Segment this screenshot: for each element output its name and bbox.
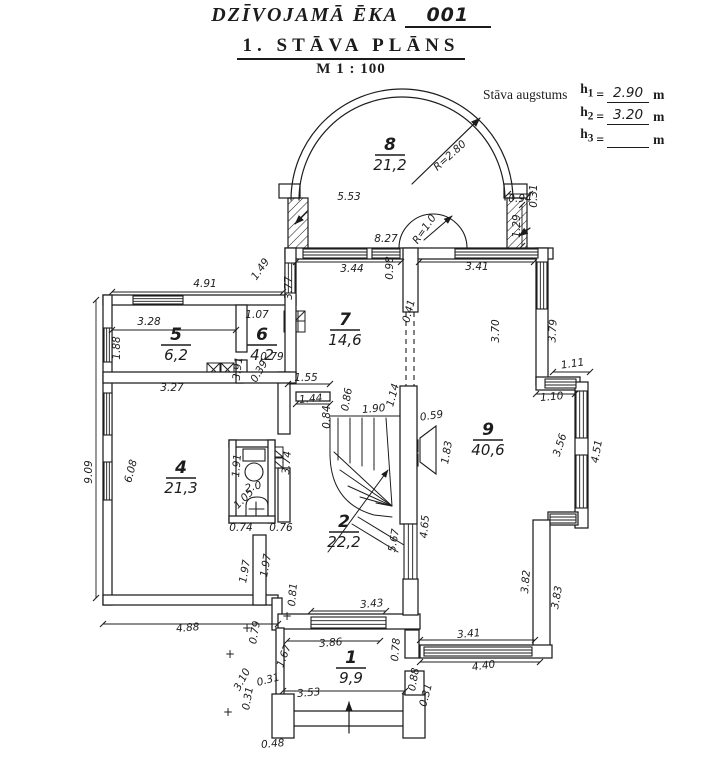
stair-winder	[386, 418, 392, 506]
room-area: 6,2	[164, 346, 188, 364]
floor-plan-sheet: DZĪVOJAMĀ ĒKA 001 1. STĀVA PLĀNS M 1 : 1…	[0, 0, 702, 774]
window-frame	[311, 617, 386, 628]
dimension-label: 3.44	[340, 263, 363, 275]
survey-mark: +	[282, 609, 292, 623]
window-symbol	[311, 617, 386, 628]
dimension-label: 3.41	[457, 627, 481, 641]
window-symbol	[550, 514, 576, 523]
dimension-label: 3.86	[319, 636, 344, 650]
window-symbol	[545, 379, 576, 388]
wall	[405, 630, 419, 658]
dimension-label: 0.81	[286, 583, 300, 607]
dimension-label: 3.77	[283, 276, 295, 300]
window-symbol	[537, 262, 547, 309]
dimension-label: 0.48	[261, 737, 286, 751]
room-label: 222,2	[327, 512, 360, 551]
dimension-label: 1.11	[560, 356, 585, 371]
wall	[103, 295, 296, 305]
window-symbol	[576, 391, 587, 438]
dimension-label: 0.76	[269, 522, 293, 534]
wall	[272, 694, 294, 738]
dimension-label: 9.09	[83, 460, 95, 484]
dimension-label: 1.97	[237, 559, 253, 584]
wall	[533, 520, 550, 650]
wall	[268, 440, 275, 523]
dimension-label: 1.90	[362, 402, 387, 416]
dimension-label: 1.88	[111, 336, 123, 360]
dimension-label: 1.29	[511, 214, 523, 238]
room-number: 2	[338, 512, 350, 532]
window-symbol	[104, 462, 112, 500]
dimension-label: 0.74	[229, 522, 252, 534]
survey-mark: +	[242, 621, 252, 635]
room-number: 9	[482, 420, 494, 440]
dimension-label: 5.53	[337, 191, 360, 203]
wall	[278, 468, 290, 522]
dimension-label: 4.88	[176, 621, 201, 635]
window-frame	[404, 524, 417, 579]
fireplace-opening	[420, 426, 436, 474]
window-symbol	[576, 455, 587, 508]
dimension-label: 3.43	[360, 597, 384, 611]
dimension-label: 8.27	[374, 233, 398, 245]
dimension-label: 1.14	[384, 382, 402, 408]
room-number: 7	[339, 310, 351, 330]
window-frame	[537, 262, 547, 309]
survey-mark: +	[223, 705, 233, 719]
room-label: 714,6	[328, 310, 361, 349]
dimension-label: 5.67	[386, 528, 402, 553]
window-frame	[576, 391, 587, 438]
dimension-label: 0.98	[384, 256, 396, 280]
room-area: 22,2	[327, 533, 360, 551]
room-label: 940,6	[471, 420, 504, 459]
dimension-label: 1.10	[540, 390, 565, 404]
arch-column	[288, 198, 308, 250]
dimension-label: 1.83	[439, 440, 455, 465]
window-symbol	[424, 647, 532, 656]
column-footing	[279, 184, 300, 198]
window-frame	[104, 393, 112, 435]
room-label: 421,3	[164, 458, 197, 497]
wall	[236, 372, 296, 383]
dimension-label: 3.56	[551, 432, 570, 458]
dimension-label: 1.44	[299, 392, 323, 406]
window-frame	[455, 249, 538, 258]
window-symbol	[133, 296, 183, 304]
dimension-label: R=2.80	[431, 138, 469, 174]
window-frame	[424, 647, 532, 656]
room-area: 40,6	[471, 441, 504, 459]
wall	[229, 440, 236, 523]
room-area: 21,2	[373, 156, 406, 174]
dimension-label: 3.74	[280, 451, 294, 475]
window-frame	[133, 296, 183, 304]
room-number: 8	[384, 135, 396, 155]
floor-plan-drawing: 821,2714,656,264,2421,3940,6222,219,95.5…	[0, 0, 702, 774]
dimension-label: 6.08	[122, 458, 140, 484]
room-label: 56,2	[161, 325, 191, 364]
window-frame	[104, 462, 112, 500]
window-frame	[545, 379, 576, 388]
dimension-label: 4.51	[589, 439, 605, 464]
wall	[403, 579, 418, 615]
room-number: 5	[170, 325, 182, 345]
window-frame	[303, 249, 367, 258]
wall	[103, 595, 278, 605]
room-number: 6	[256, 325, 268, 345]
arch-outer	[291, 89, 513, 200]
dimension-label: 3.41	[465, 261, 488, 273]
room-area: 21,3	[164, 479, 197, 497]
dimension-label: 1.07	[245, 309, 269, 321]
dimension-label: 0.78	[389, 637, 403, 662]
dimension-label: 1.91	[230, 454, 244, 478]
arch-inner	[299, 97, 505, 200]
dimension-label: 3.79	[546, 319, 559, 343]
dimension-label: 0.86	[339, 387, 355, 412]
room-number: 1	[345, 648, 357, 668]
window-symbol	[455, 249, 538, 258]
dimension-label: 3.28	[137, 316, 161, 328]
dimension-label: 1.49	[249, 256, 272, 282]
dimension-label: 4.91	[193, 278, 216, 290]
stair-winder	[348, 486, 392, 506]
dimension-label: 3.82	[519, 569, 533, 594]
dimension-label: 0.84	[321, 405, 333, 428]
window-symbol	[404, 524, 417, 579]
dimension-line	[93, 297, 99, 601]
dimension-label: 4.40	[471, 658, 496, 673]
dimension-label: 3.70	[490, 319, 502, 343]
room-area: 14,6	[328, 331, 361, 349]
room-label: 19,9	[336, 648, 366, 687]
dimension-label: 3.53	[297, 686, 321, 700]
dimension-label: 1.55	[294, 372, 318, 384]
dimension-label: 0.59	[419, 408, 444, 423]
dimension-label: 3.83	[549, 585, 565, 610]
dimension-label: R=1.0	[410, 212, 439, 246]
window-frame	[576, 455, 587, 508]
porch-steps	[294, 702, 405, 733]
window-symbol	[303, 249, 367, 258]
dimension-label: 4.65	[418, 514, 432, 539]
toilet-cistern	[243, 449, 265, 461]
room-label: 821,2	[373, 135, 406, 174]
room-number: 4	[174, 458, 187, 478]
window-frame	[550, 514, 576, 523]
survey-mark: +	[225, 647, 235, 661]
window-symbol	[104, 393, 112, 435]
dimension-label: 0.31	[528, 184, 540, 207]
wall	[400, 386, 417, 524]
room-area: 9,9	[339, 669, 363, 687]
toilet-bowl	[245, 463, 263, 481]
dimension-label: 3.27	[160, 382, 184, 394]
